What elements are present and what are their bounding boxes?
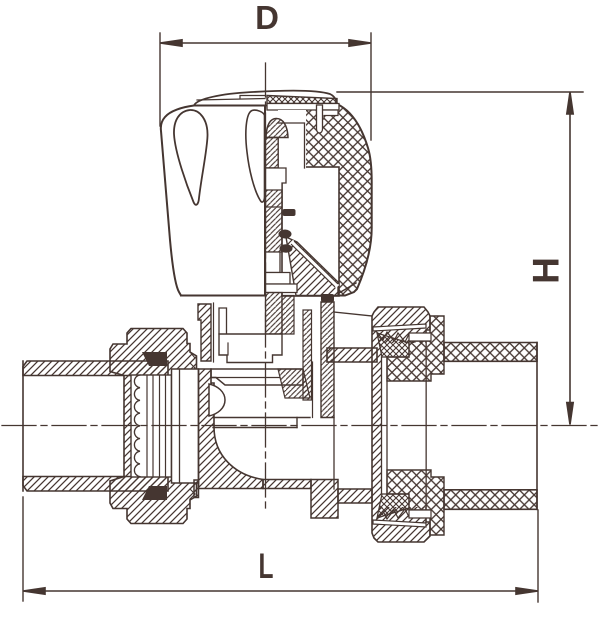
svg-text:L: L <box>259 548 274 586</box>
svg-text:D: D <box>255 0 279 36</box>
svg-text:H: H <box>526 257 567 284</box>
